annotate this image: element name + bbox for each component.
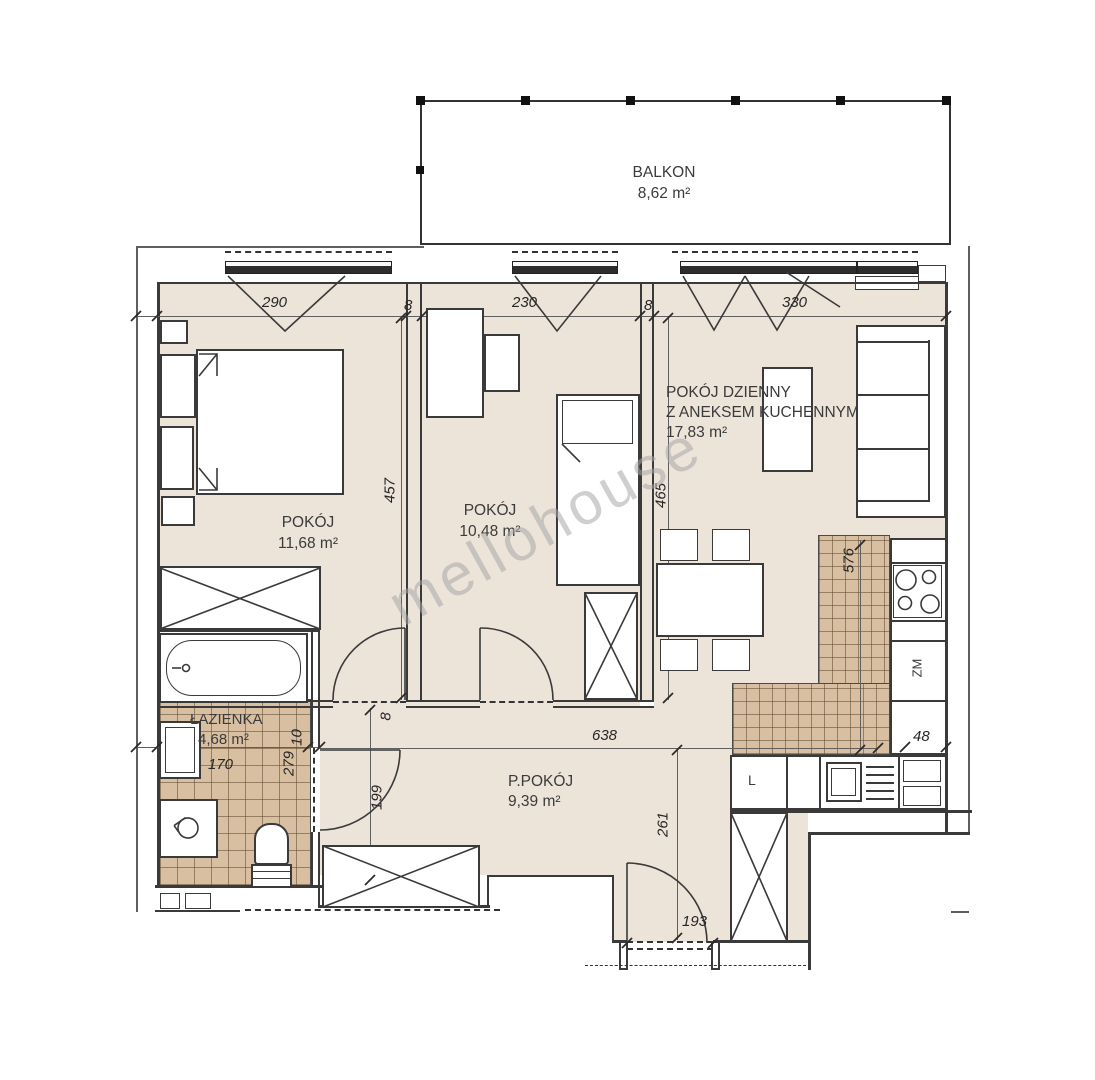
wall-bathroom-right	[311, 832, 313, 888]
living-room-name-1: POKÓJ DZIENNY	[666, 383, 859, 403]
wall-detail	[160, 893, 180, 909]
bathroom-name: ŁAZIENKA	[190, 710, 263, 730]
floor-bedroom-ext	[320, 630, 406, 702]
window-lintel-dash	[672, 251, 918, 253]
wall-notch	[487, 875, 489, 908]
wall-hallway	[157, 706, 333, 708]
door-opening-small-room	[480, 701, 553, 703]
dim-bedroom-depth: 457	[382, 473, 399, 509]
wardrobe-bedroom	[160, 566, 321, 630]
living-room-label: POKÓJ DZIENNY Z ANEKSEM KUCHENNYM 17,83 …	[666, 383, 859, 443]
wall-bathroom-top	[157, 630, 320, 632]
door-opening-bathroom	[313, 748, 315, 832]
sink-drainer	[866, 790, 894, 792]
wall-top-inner	[157, 282, 947, 284]
counter-divider	[890, 640, 947, 642]
wall-notch	[487, 875, 614, 877]
dim-hallway-width: 638	[592, 727, 617, 744]
sink-drainer	[866, 782, 894, 784]
exterior-dash-entrance	[585, 965, 806, 966]
wall-notch	[612, 875, 614, 942]
dining-chair	[660, 529, 698, 561]
dim-top-wall-a: 8	[404, 297, 412, 314]
wall-detail	[185, 893, 211, 909]
stove	[893, 565, 942, 618]
dim-bathroom-width: 170	[208, 756, 233, 773]
sink-drainer	[866, 798, 894, 800]
sink-drainer	[866, 774, 894, 776]
dimension-line-kitchen-depth	[860, 540, 861, 750]
dim-hallway-depth: 261	[655, 807, 672, 843]
wall-bottom-left	[155, 910, 240, 912]
dimension-line-hall-depth	[677, 748, 678, 940]
window-lintel-dash	[512, 251, 618, 253]
dim-top-living: 330	[782, 294, 807, 311]
sink-drainer	[866, 766, 894, 768]
sofa	[856, 325, 946, 518]
kitchen-tiles-horizontal	[732, 683, 890, 755]
dim-top-small-room: 230	[512, 294, 537, 311]
bathroom-label: ŁAZIENKA 4,68 m²	[190, 710, 263, 750]
dim-hall-wall: 8	[378, 707, 395, 727]
hallway-name: P.POKÓJ	[508, 772, 573, 792]
window-kitchen	[857, 261, 918, 274]
dim-top-wall-b: 8	[644, 297, 652, 314]
balcony-post	[942, 96, 951, 105]
exterior-dash-bottom	[245, 909, 500, 911]
wall-hallway	[553, 700, 654, 702]
bedroom-area: 11,68 m²	[218, 533, 398, 554]
balcony-name: BALKON	[574, 162, 754, 183]
balcony-post	[521, 96, 530, 105]
bedroom-name: POKÓJ	[218, 512, 398, 533]
sofa-seat-divider	[856, 394, 928, 396]
wall-bathroom-right	[318, 832, 320, 888]
wall-return	[918, 265, 946, 282]
dim-bathroom-depth: 279	[281, 746, 298, 782]
entrance-door-opening	[627, 941, 713, 943]
balcony-post	[731, 96, 740, 105]
balcony-post	[416, 166, 424, 174]
counter-divider	[786, 757, 788, 808]
balcony-post	[626, 96, 635, 105]
sofa-armrest	[856, 500, 928, 502]
dim-hallway-door: 199	[369, 780, 386, 816]
counter-divider	[890, 562, 947, 564]
pillow	[562, 400, 633, 444]
exterior-line-top	[136, 246, 424, 248]
desk-chair	[484, 334, 520, 392]
entrance-door-opening	[627, 948, 713, 950]
window-lintel-dash	[225, 251, 392, 253]
hallway-label: P.POKÓJ 9,39 m²	[508, 772, 573, 812]
bathtub-basin	[166, 640, 301, 696]
dim-top-bedroom: 290	[262, 294, 287, 311]
living-room-name-2: Z ANEKSEM KUCHENNYM	[666, 403, 859, 423]
double-bed	[196, 349, 344, 495]
wall-hallway	[406, 700, 480, 702]
dishwasher-label: ZM	[907, 659, 927, 678]
exterior-line-left	[136, 246, 138, 912]
counter-shelf	[903, 786, 941, 806]
washing-machine	[159, 799, 218, 858]
wardrobe-hallway	[322, 845, 480, 908]
wall-hallway	[406, 706, 480, 708]
counter-divider	[898, 757, 900, 808]
nightstand	[160, 426, 194, 490]
counter-divider	[819, 757, 821, 808]
dim-counter-width: 48	[913, 728, 930, 745]
wall-bathroom-bottom	[155, 885, 325, 888]
dining-chair	[712, 529, 750, 561]
fridge-label: L	[748, 770, 756, 790]
bedroom-label: POKÓJ 11,68 m²	[218, 512, 398, 554]
wall-hallway	[553, 706, 654, 708]
wall-bathroom-right	[311, 630, 313, 748]
kitchen-sink-basin	[831, 768, 856, 796]
hallway-area: 9,39 m²	[508, 792, 573, 812]
dining-chair	[660, 639, 698, 671]
toilet-bowl	[254, 823, 289, 865]
sofa-seat-divider	[856, 448, 928, 450]
counter-divider	[890, 700, 947, 702]
dim-kitchen-depth: 576	[841, 543, 858, 579]
window-bedroom	[225, 261, 392, 274]
dimension-line-hallway	[320, 748, 878, 749]
balcony-door-window	[680, 261, 857, 274]
wardrobe-entrance	[730, 812, 788, 942]
desk	[426, 308, 484, 418]
counter-shelf	[903, 760, 941, 782]
window-small-room	[512, 261, 618, 274]
sofa-backrest	[928, 340, 930, 502]
dining-chair	[712, 639, 750, 671]
balcony-label: BALKON 8,62 m²	[574, 162, 754, 204]
dim-entrance-width: 193	[682, 913, 707, 930]
wall-step	[808, 832, 970, 835]
exterior-line-right	[968, 246, 970, 835]
wall-bathroom-right	[318, 630, 320, 748]
wall-partition-a	[406, 284, 408, 702]
bedroom-cabinet	[161, 496, 195, 526]
balcony-post	[416, 96, 425, 105]
bathroom-area: 4,68 m²	[190, 730, 263, 750]
floor-plan: BALKON 8,62 m² POKÓJ 11,68 m² POKÓJ 10,4…	[0, 0, 1095, 1080]
nightstand	[160, 354, 196, 418]
toilet-tank-line	[253, 878, 290, 879]
exterior-line-step	[951, 911, 969, 913]
wall-step	[808, 833, 811, 970]
balcony-post	[836, 96, 845, 105]
toilet-tank	[251, 864, 292, 888]
dining-table	[656, 563, 764, 637]
wall-partition-a	[420, 284, 422, 702]
bedroom-cabinet	[160, 320, 188, 344]
dimension-line-top	[136, 316, 947, 317]
counter-divider	[890, 620, 947, 622]
balcony-area: 8,62 m²	[574, 183, 754, 204]
door-opening-bedroom	[333, 701, 406, 703]
toilet-tank-line	[253, 871, 290, 872]
wardrobe-small-room	[584, 592, 638, 700]
sofa-armrest	[856, 341, 928, 343]
